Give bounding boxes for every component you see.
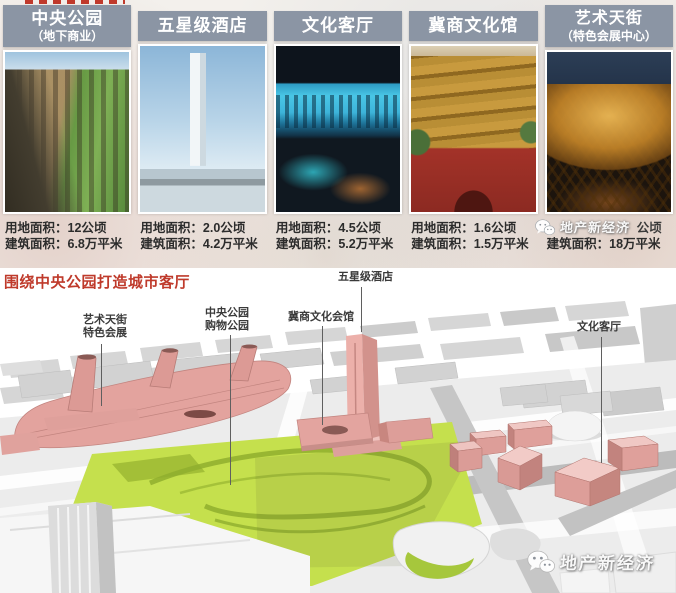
label-central-park: 中央公园 购物公园 (205, 307, 249, 333)
column-header: 中央公园 （地下商业） (3, 5, 131, 47)
land-area-text: 用地面积：2.0公顷 (140, 220, 266, 236)
wechat-icon (535, 219, 555, 236)
column-header: 冀商文化馆 (409, 11, 537, 41)
column-hotel: 五星级酒店 用地面积：2.0公顷 建筑面积：4.2万平米 (138, 0, 266, 252)
label-line: 中央公园 (205, 307, 249, 320)
label-line: 冀商文化会馆 (288, 311, 354, 324)
column-title: 中央公园 (3, 9, 131, 29)
building-area-text: 建筑面积：18万平米 (547, 236, 673, 252)
leader-line-hotel (361, 287, 362, 332)
column-header: 艺术天街 （特色会展中心） (545, 5, 673, 47)
column-art-street: 艺术天街 （特色会展中心） (545, 0, 673, 252)
watermark-text: 地产新经济 (559, 220, 630, 236)
column-culture-hall: 文化客厅 用地面积：4.5公顷 建筑面积：5.2万平米 (274, 0, 402, 252)
building-area-text: 建筑面积：1.5万平米 (411, 236, 537, 252)
column-stats: 用地面积：2.0公顷 建筑面积：4.2万平米 (138, 220, 266, 252)
label-line: 文化客厅 (577, 321, 621, 334)
photo-golden-canopy-interior (545, 50, 673, 214)
obscured-land-area-fragment: 公顷 (637, 220, 662, 236)
label-line: 购物公园 (205, 320, 249, 333)
leader-line-central-park (230, 335, 231, 485)
column-subtitle: （特色会展中心） (545, 29, 673, 44)
label-art-street: 艺术天街 特色会展 (83, 314, 127, 340)
leader-line-art-street (101, 344, 102, 406)
leader-line-jishang (322, 326, 323, 425)
column-title: 文化客厅 (274, 16, 402, 36)
land-area-obscured-line: 地产新经济 公顷 (547, 220, 673, 236)
column-title: 艺术天街 (545, 9, 673, 29)
column-jishang-culture-hall: 冀商文化馆 用地面积：1.6公顷 建筑面积：1.5万平米 (409, 0, 537, 252)
column-title: 五星级酒店 (138, 16, 266, 36)
top-comparison-section: 中央公园 （地下商业） 用地面积：12公顷 建筑面积：6.8万平米 五星级酒店 … (0, 0, 676, 268)
label-line: 五星级酒店 (338, 271, 393, 284)
watermark: 地产新经济 (527, 549, 655, 574)
column-stats: 用地面积：1.6公顷 建筑面积：1.5万平米 (409, 220, 537, 252)
label-culture-hall: 文化客厅 (577, 321, 621, 334)
column-title: 冀商文化馆 (409, 16, 537, 36)
photo-hotel-tower (138, 44, 266, 214)
wechat-icon (527, 550, 555, 574)
column-stats: 用地面积：4.5公顷 建筑面积：5.2万平米 (274, 220, 402, 252)
label-line: 特色会展 (83, 327, 127, 340)
label-line: 艺术天街 (83, 314, 127, 327)
watermark-overlay: 地产新经济 公顷 (535, 219, 662, 236)
photo-central-park-aerial (3, 50, 131, 214)
leader-line-culture-hall (601, 337, 602, 463)
land-area-text: 用地面积：4.5公顷 (276, 220, 402, 236)
column-central-park: 中央公园 （地下商业） 用地面积：12公顷 建筑面积：6.8万平米 (3, 0, 131, 252)
building-area-text: 建筑面积：6.8万平米 (5, 236, 131, 252)
infographic-page: 中央公园 （地下商业） 用地面积：12公顷 建筑面积：6.8万平米 五星级酒店 … (0, 0, 676, 593)
column-subtitle: （地下商业） (3, 29, 131, 44)
land-area-text: 用地面积：1.6公顷 (411, 220, 537, 236)
project-columns: 中央公园 （地下商业） 用地面积：12公顷 建筑面积：6.8万平米 五星级酒店 … (0, 0, 676, 252)
column-header: 五星级酒店 (138, 11, 266, 41)
label-hotel: 五星级酒店 (338, 271, 393, 284)
column-stats: 地产新经济 公顷 建筑面积：18万平米 (545, 220, 673, 252)
land-area-text: 用地面积：12公顷 (5, 220, 131, 236)
photo-culture-hall-night (274, 44, 402, 214)
building-area-text: 建筑面积：5.2万平米 (276, 236, 402, 252)
label-jishang: 冀商文化会馆 (288, 311, 354, 324)
column-header: 文化客厅 (274, 11, 402, 41)
watermark-text: 地产新经济 (559, 549, 656, 574)
column-stats: 用地面积：12公顷 建筑面积：6.8万平米 (3, 220, 131, 252)
photo-traditional-palace (409, 44, 537, 214)
building-area-text: 建筑面积：4.2万平米 (140, 236, 266, 252)
